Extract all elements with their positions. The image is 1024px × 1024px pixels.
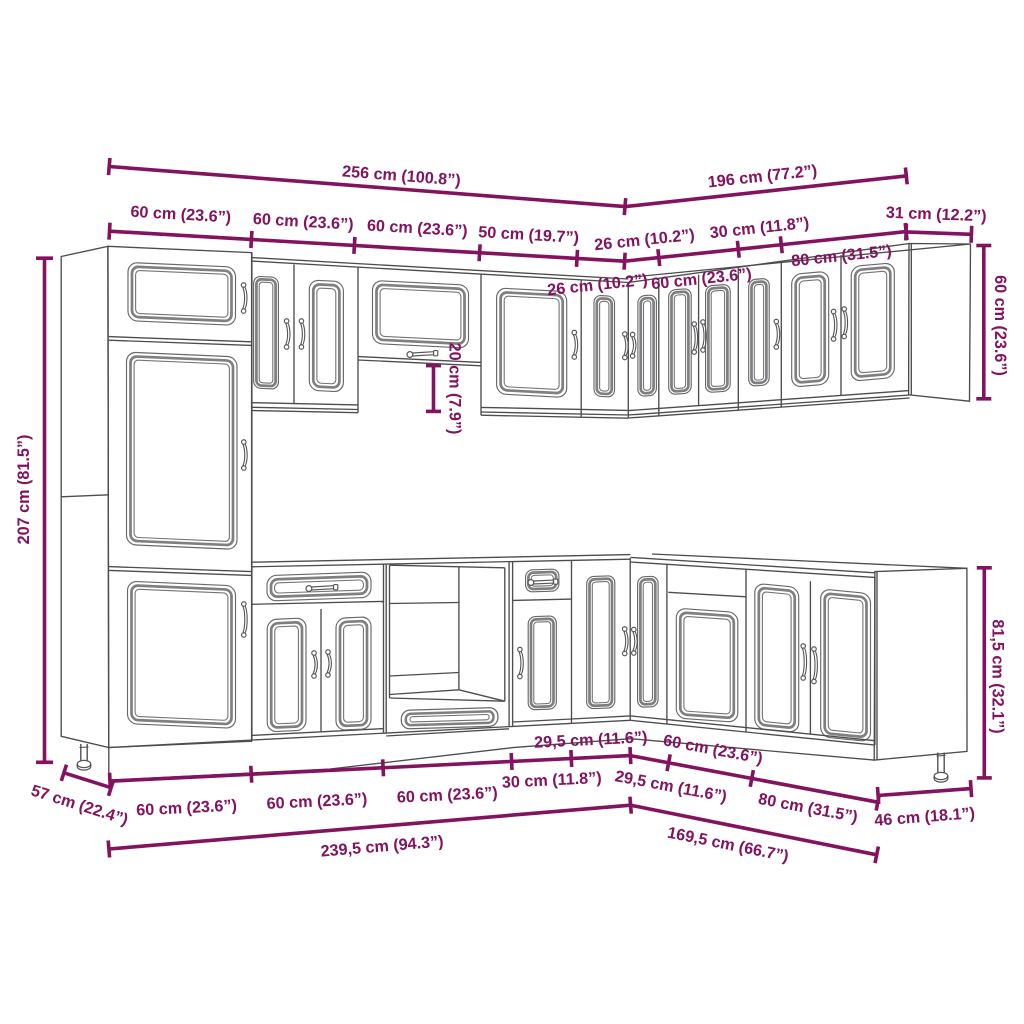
svg-text:60 cm (23.6”): 60 cm (23.6”): [991, 275, 1009, 376]
svg-text:20 cm (7.9”): 20 cm (7.9”): [446, 343, 464, 435]
svg-text:207 cm (81.5”): 207 cm (81.5”): [15, 435, 33, 545]
svg-text:81,5 cm (32.1”): 81,5 cm (32.1”): [989, 619, 1007, 733]
svg-text:31 cm (12.2”): 31 cm (12.2”): [885, 204, 986, 226]
